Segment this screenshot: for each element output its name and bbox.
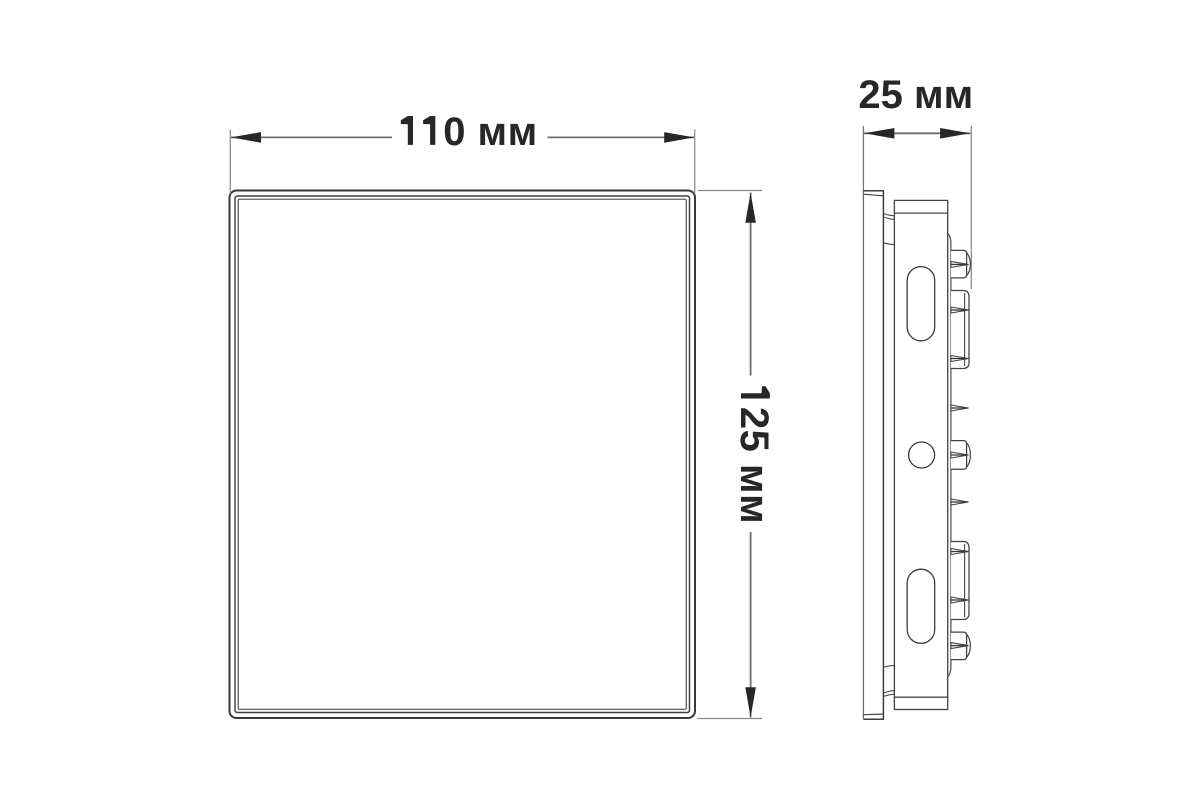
svg-text:25 мм: 25 мм (858, 73, 973, 117)
svg-text:0 мм: 0 мм (443, 110, 538, 154)
svg-text:25 мм: 25 мм (732, 407, 776, 524)
